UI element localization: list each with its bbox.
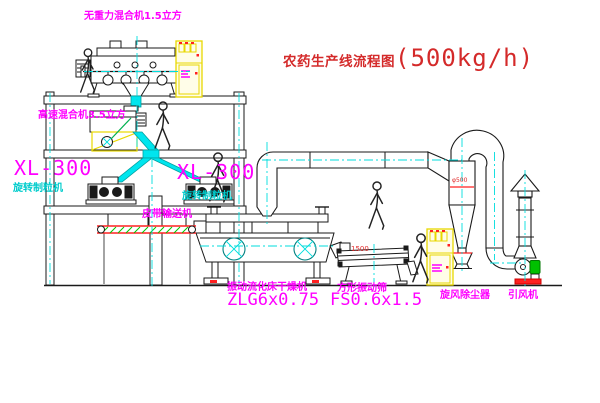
label-gravity-mixer: 无重力混合机1.5立方: [84, 12, 182, 22]
label-belt-conveyor: 皮带输送机: [142, 210, 192, 220]
fan-base: [515, 279, 541, 284]
granulator-left: [86, 177, 136, 204]
fan-motor: [530, 261, 540, 274]
label-granulator-right-model: XL-300: [177, 162, 255, 182]
label-granulator-left-model: XL-300: [14, 158, 92, 178]
exhaust-duct: [257, 152, 428, 216]
control-cabinet-top: [176, 41, 202, 97]
person-2: [155, 102, 170, 149]
gravity-mixer-discharge-chute: [131, 96, 141, 107]
label-dryer-model: ZLG6x0.75: [227, 292, 319, 309]
label-fan: 引风机: [508, 291, 538, 301]
diagram-title: 农药生产线流程图 (500kg/h): [283, 47, 534, 72]
vibrating-screen: [337, 243, 418, 284]
control-cabinet-right: [427, 229, 453, 285]
belt-conveyor: [97, 214, 196, 284]
label-granulator-right-name: 旋转制粒机: [182, 192, 232, 202]
label-high-speed-mixer: 高速混合机3.5立方: [38, 111, 126, 121]
induced-draft-fan: [515, 259, 541, 284]
dim-screen: 1500: [351, 246, 369, 253]
label-cyclone: 旋风除尘器: [440, 291, 490, 301]
label-granulator-left-name: 旋转制粒机: [13, 184, 63, 194]
person-4: [369, 182, 384, 229]
title-chinese: 农药生产线流程图: [283, 50, 395, 70]
fluid-bed-dryer: [194, 207, 347, 284]
title-capacity: (500kg/h): [395, 44, 534, 72]
label-screen-model: FS0.6x1.5: [330, 292, 422, 309]
dim-cyclone: φ500: [452, 178, 467, 184]
person-5: [413, 234, 428, 283]
cyclone-inlet-taper: [428, 152, 449, 181]
flow-diagram-page: 农药生产线流程图 (500kg/h) 无重力混合机1.5立方 高速混合机3.5立…: [0, 0, 600, 403]
